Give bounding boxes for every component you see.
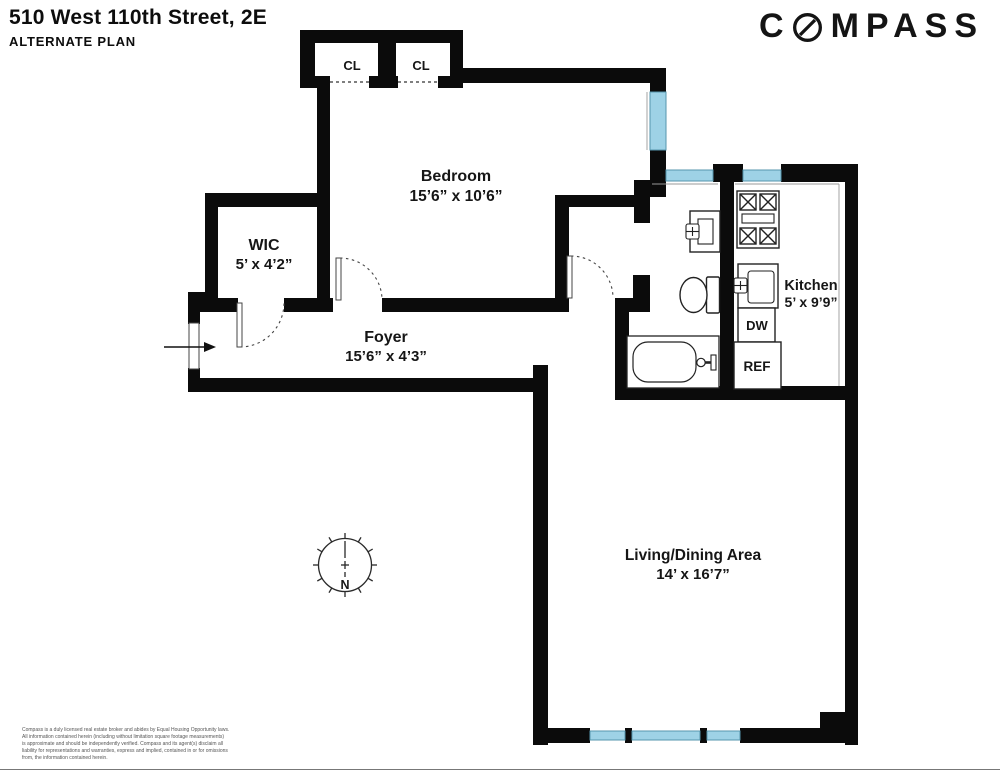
floor-plan-svg: N CL CL Bedroom 15’6” x 10’6” WIC 5’ x 4… xyxy=(0,0,1000,772)
living-window-3 xyxy=(707,731,740,740)
bottom-divider xyxy=(0,769,1000,770)
north-label: N xyxy=(340,578,349,592)
disclaimer-line: Compass is a duly licensed real estate b… xyxy=(22,727,229,734)
bathroom-sink-icon xyxy=(686,211,720,252)
kitchen-dims: 5’ x 9’9” xyxy=(785,294,838,310)
living-dims: 14’ x 16’7” xyxy=(656,566,729,583)
wic-door-arc xyxy=(240,303,284,347)
disclaimer-line: is approximate and should be independent… xyxy=(22,741,229,748)
kitchen-window xyxy=(743,170,781,181)
living-window-2 xyxy=(632,731,700,740)
bathroom-window xyxy=(666,170,713,181)
stove-icon xyxy=(737,191,779,248)
living-label: Living/Dining Area xyxy=(625,547,762,564)
bedroom-door-leaf xyxy=(336,258,341,300)
disclaimer: Compass is a duly licensed real estate b… xyxy=(22,727,229,762)
closet-right-label: CL xyxy=(412,58,429,73)
wic-dims: 5’ x 4’2” xyxy=(236,256,293,273)
bathroom-door-leaf xyxy=(567,256,572,298)
foyer-label: Foyer xyxy=(364,329,408,346)
bedroom-label: Bedroom xyxy=(421,168,491,185)
toilet-icon xyxy=(680,277,720,313)
dishwasher-label: DW xyxy=(746,318,768,333)
bedroom-window xyxy=(650,92,666,150)
entry-doorway xyxy=(189,323,199,369)
kitchen-sink-icon xyxy=(734,264,778,308)
living-window-1 xyxy=(590,731,625,740)
compass-rose: N xyxy=(313,533,377,597)
kitchen-label: Kitchen xyxy=(784,278,837,294)
windows xyxy=(590,92,781,740)
disclaimer-line: liability for representations and warran… xyxy=(22,748,229,755)
refrigerator-label: REF xyxy=(744,359,771,374)
closet-left-label: CL xyxy=(343,58,360,73)
floorplan-page: 510 West 110th Street, 2E ALTERNATE PLAN… xyxy=(0,0,1000,772)
wic-door-leaf xyxy=(237,303,242,347)
bedroom-door-arc xyxy=(340,258,382,300)
bathroom-door-arc xyxy=(571,256,613,298)
wic-label: WIC xyxy=(248,237,280,254)
doors xyxy=(164,82,613,369)
bathtub-icon xyxy=(627,336,719,388)
disclaimer-line: from, the information contained herein. xyxy=(22,755,229,762)
bedroom-dims: 15’6” x 10’6” xyxy=(409,188,502,205)
foyer-dims: 15’6” x 4’3” xyxy=(345,348,427,365)
disclaimer-line: All information contained herein (includ… xyxy=(22,734,229,741)
